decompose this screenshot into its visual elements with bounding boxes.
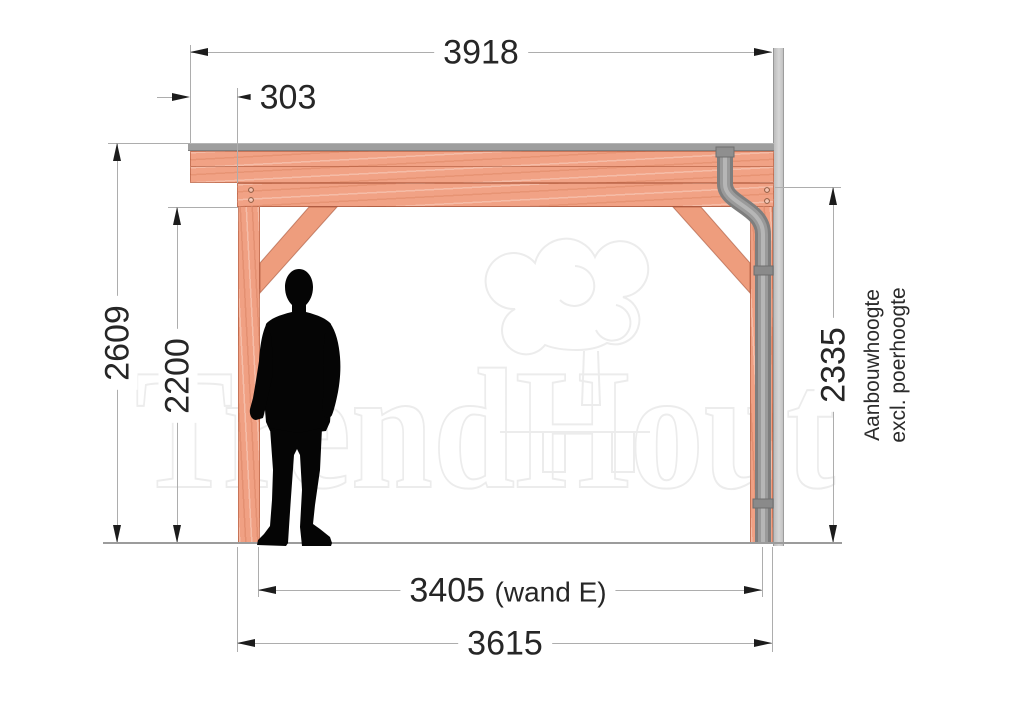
ground-line: [103, 542, 842, 544]
main-beam: [237, 183, 774, 207]
dim-label-2609: 2609: [99, 296, 138, 390]
house-wall-strip: [773, 48, 784, 546]
left-post: [238, 206, 260, 543]
fascia-board-seam: [191, 166, 773, 167]
tree-logo-watermark: [486, 239, 650, 472]
note-line-2: excl. poerhoogte: [886, 287, 912, 442]
dim-label-3615: 3615: [458, 625, 552, 664]
note-line-1: Aanbouwhoogte: [860, 287, 886, 442]
dim-label-2200: 2200: [159, 329, 198, 423]
inner-width-suffix: (wand E): [495, 577, 607, 608]
left-corner-brace: [260, 207, 337, 293]
dim-label-3918: 3918: [434, 34, 528, 73]
technical-drawing-canvas: TrendHout 3918: [0, 0, 1024, 704]
inner-width-value: 3405: [409, 572, 485, 610]
roof-covering: [188, 143, 774, 151]
attach-height-note: Aanbouwhoogte excl. poerhoogte: [860, 287, 912, 442]
right-corner-brace: [673, 207, 750, 293]
dim-label-3405: 3405 (wand E): [400, 572, 615, 611]
standing-man-silhouette: [250, 269, 341, 546]
dim-label-303: 303: [251, 79, 326, 118]
dim-label-2335: 2335: [815, 318, 854, 412]
fascia-beam: [190, 151, 774, 183]
right-post: [750, 206, 773, 543]
